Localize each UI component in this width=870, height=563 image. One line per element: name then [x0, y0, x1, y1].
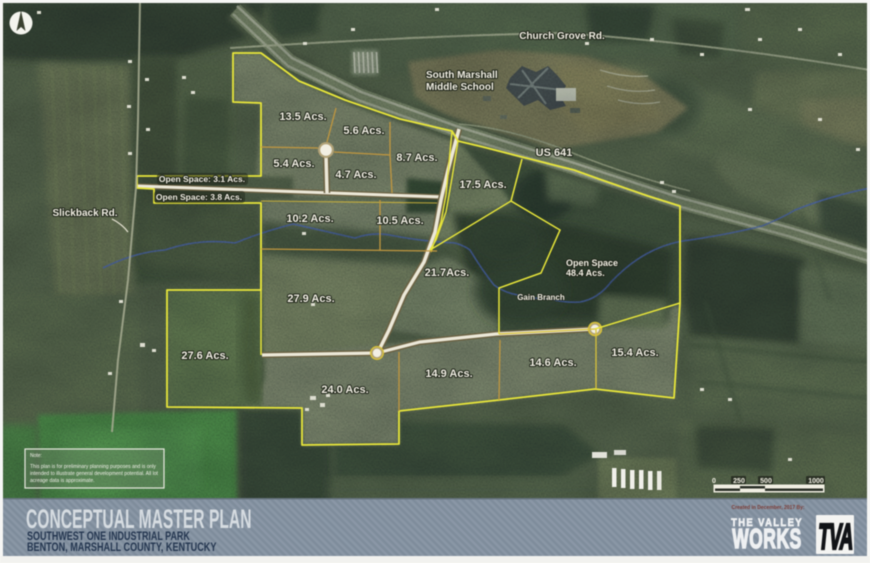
svg-text:24.0 Acs.: 24.0 Acs. — [321, 384, 368, 396]
svg-text:5.6 Acs.: 5.6 Acs. — [343, 125, 384, 137]
svg-text:Open Space: 3.8 Acs.: Open Space: 3.8 Acs. — [156, 192, 242, 202]
svg-text:Open Space: Open Space — [566, 258, 618, 268]
svg-text:27.6 Acs.: 27.6 Acs. — [181, 350, 228, 362]
svg-text:10.2 Acs.: 10.2 Acs. — [286, 213, 333, 225]
svg-text:4.7 Acs.: 4.7 Acs. — [335, 169, 376, 181]
svg-text:13.5 Acs.: 13.5 Acs. — [279, 111, 326, 123]
svg-text:Slickback Rd.: Slickback Rd. — [52, 208, 117, 219]
svg-text:South Marshall: South Marshall — [426, 70, 498, 81]
svg-text:BENTON, MARSHALL COUNTY, KENTU: BENTON, MARSHALL COUNTY, KENTUCKY — [27, 542, 216, 554]
svg-text:Open Space: 3.1 Acs.: Open Space: 3.1 Acs. — [159, 174, 245, 184]
svg-text:14.6 Acs.: 14.6 Acs. — [529, 357, 576, 369]
svg-text:1000: 1000 — [808, 478, 824, 485]
svg-text:8.7 Acs.: 8.7 Acs. — [396, 152, 437, 164]
svg-text:27.9 Acs.: 27.9 Acs. — [287, 293, 334, 305]
svg-text:48.4 Acs.: 48.4 Acs. — [566, 268, 605, 278]
svg-text:250: 250 — [733, 478, 745, 485]
svg-text:WORKS: WORKS — [732, 523, 802, 554]
svg-text:17.5 Acs.: 17.5 Acs. — [459, 179, 506, 191]
svg-text:Gain Branch: Gain Branch — [517, 293, 565, 302]
svg-text:14.9 Acs.: 14.9 Acs. — [425, 368, 472, 380]
svg-text:Middle School: Middle School — [426, 82, 494, 93]
svg-text:CONCEPTUAL MASTER PLAN: CONCEPTUAL MASTER PLAN — [26, 504, 251, 534]
svg-text:5.4 Acs.: 5.4 Acs. — [273, 158, 314, 170]
svg-text:0: 0 — [712, 478, 716, 485]
svg-text:21.7Acs.: 21.7Acs. — [425, 267, 470, 279]
svg-text:intended to illustrate general: intended to illustrate general developme… — [30, 471, 158, 477]
svg-text:Note:: Note: — [30, 453, 42, 459]
svg-text:10.5 Acs.: 10.5 Acs. — [376, 215, 423, 227]
svg-text:15.4 Acs.: 15.4 Acs. — [611, 347, 658, 359]
svg-text:acreage data is approximate.: acreage data is approximate. — [30, 478, 94, 484]
svg-text:US 641: US 641 — [536, 147, 573, 159]
svg-text:Created in December, 2017 By:: Created in December, 2017 By: — [731, 505, 804, 511]
svg-text:This plan is for preliminary p: This plan is for preliminary planning pu… — [30, 464, 156, 470]
svg-text:500: 500 — [760, 478, 772, 485]
svg-text:TVA: TVA — [818, 518, 852, 558]
svg-text:Church Grove Rd.: Church Grove Rd. — [519, 31, 605, 42]
